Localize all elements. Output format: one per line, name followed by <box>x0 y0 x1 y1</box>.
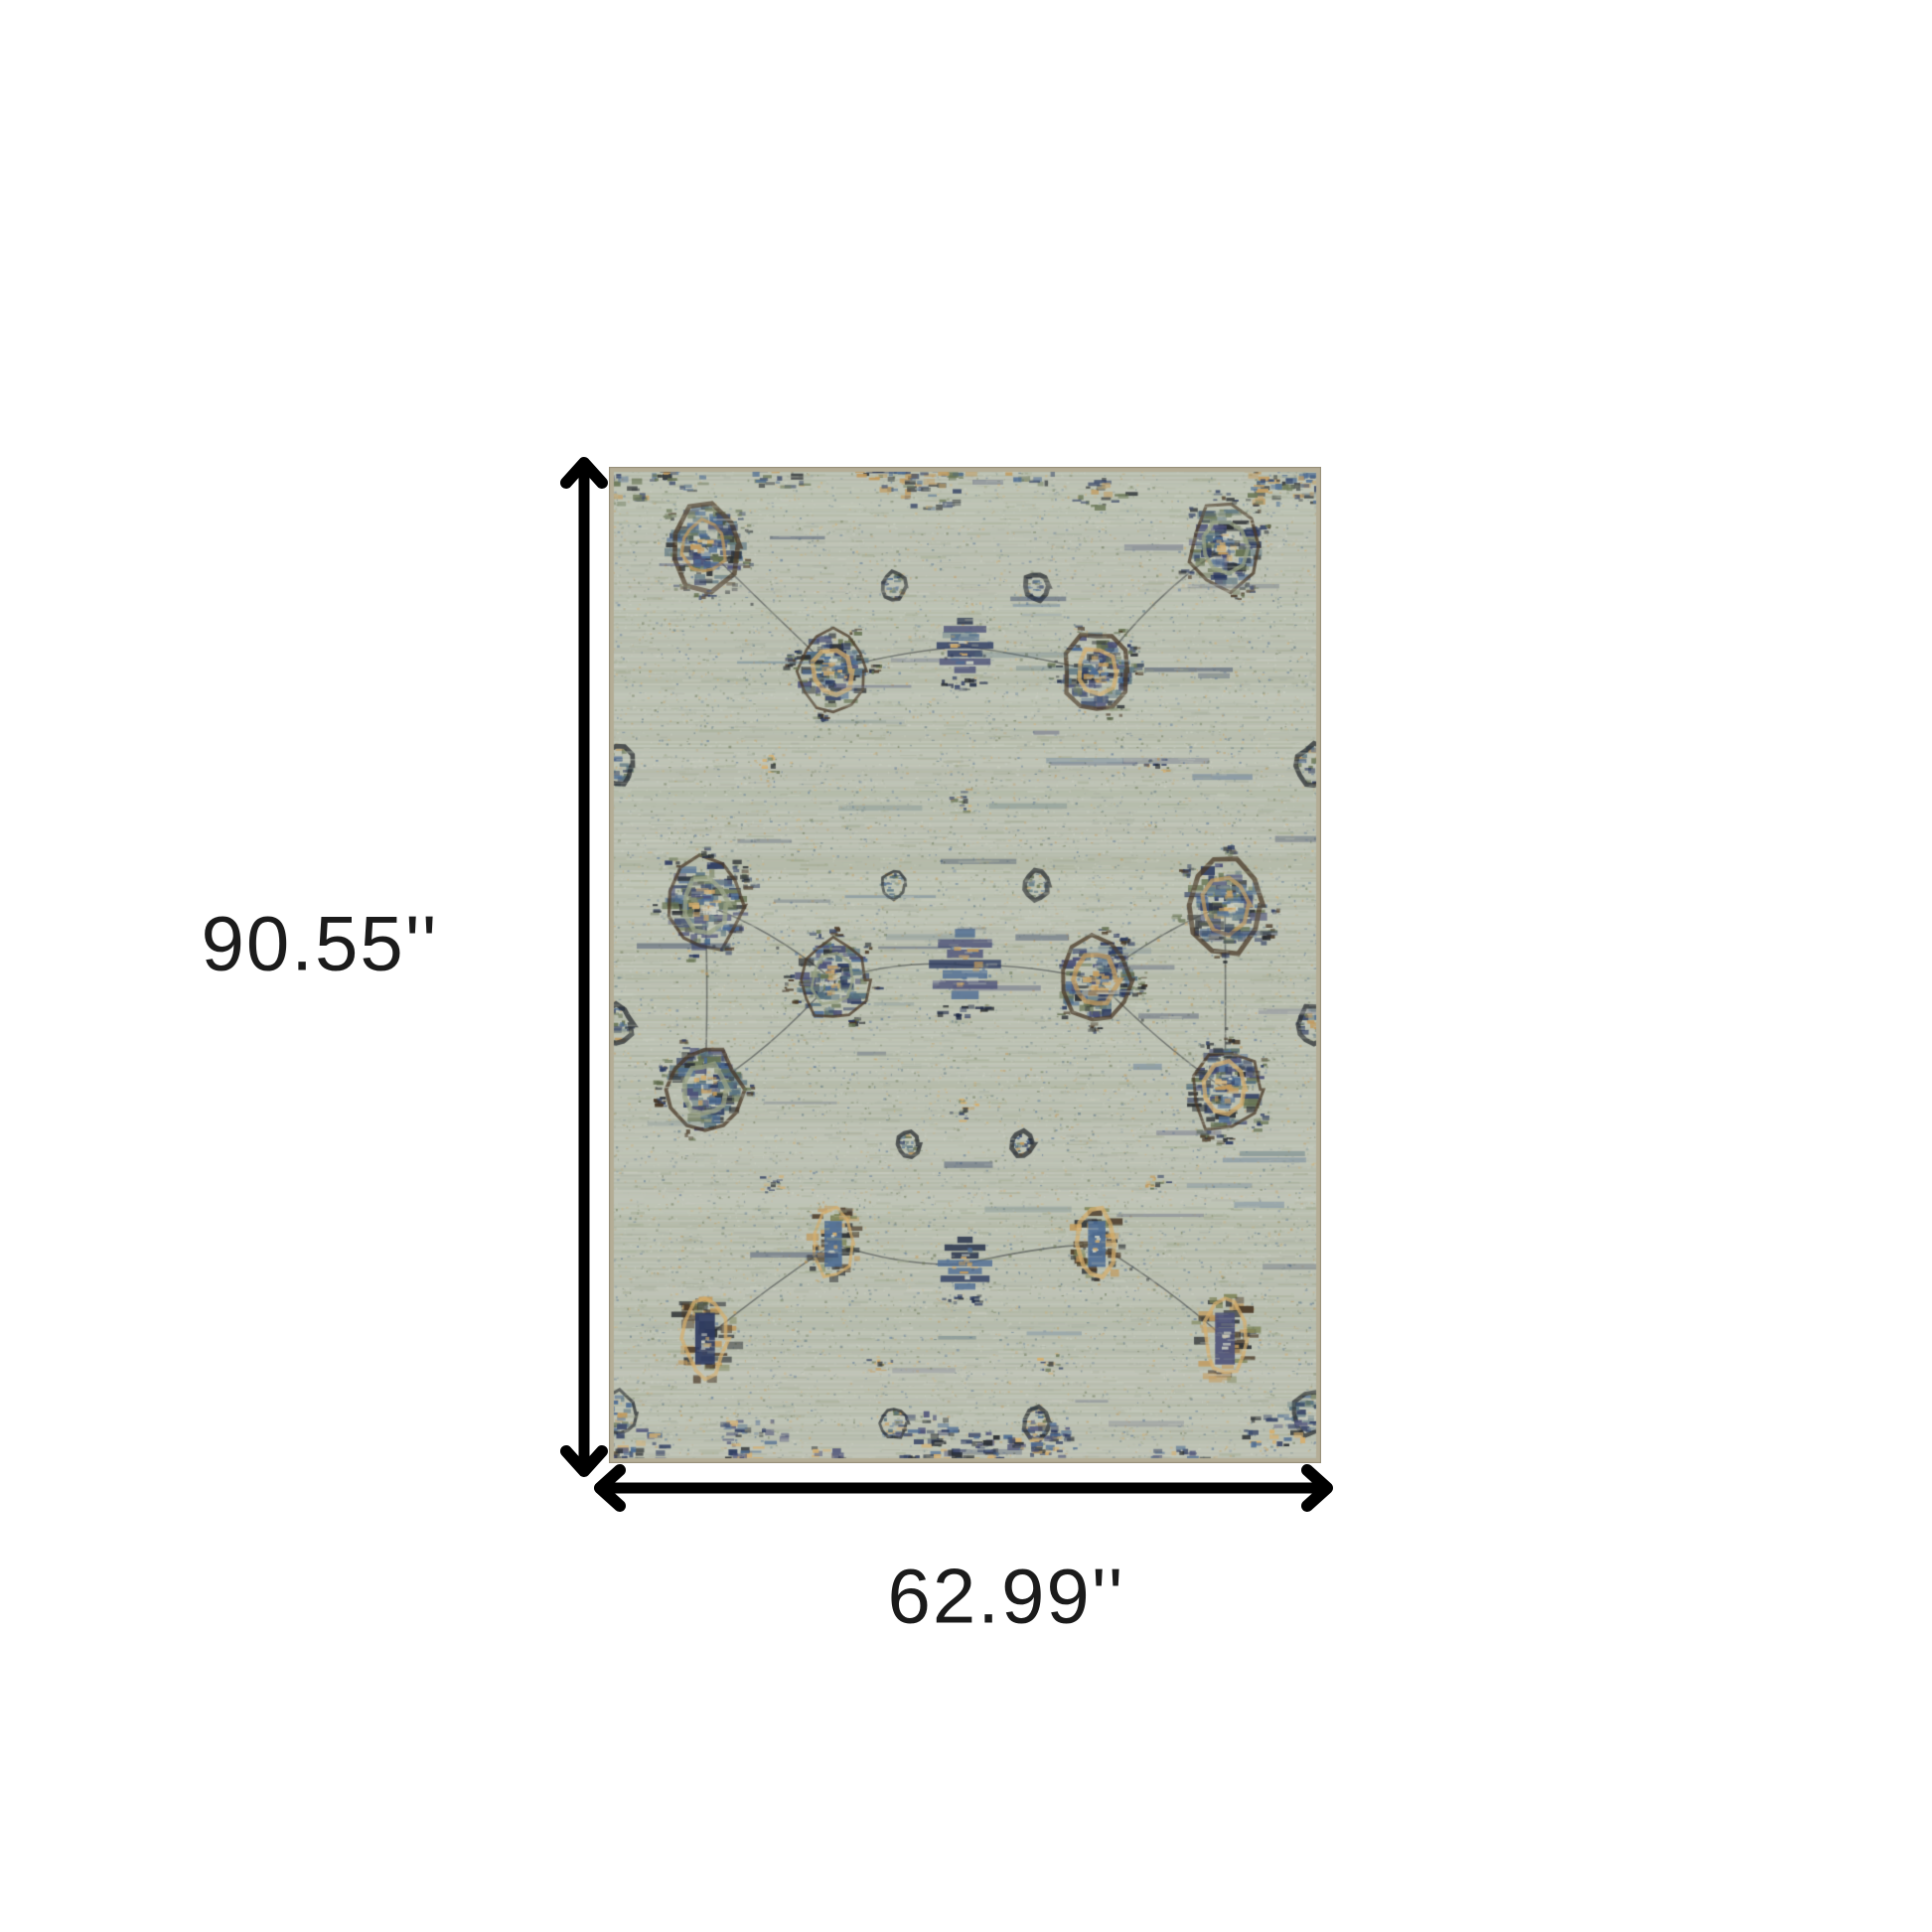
width-dimension-label: 62.99'' <box>888 1552 1125 1642</box>
arrow-left-icon <box>600 1470 620 1506</box>
arrow-up-icon <box>566 463 602 483</box>
diagram-stage: 90.55'' 62.99'' <box>0 0 1932 1932</box>
arrow-down-icon <box>566 1451 602 1471</box>
rug-image <box>609 467 1321 1463</box>
arrow-right-icon <box>1307 1470 1327 1506</box>
width-dimension-arrow <box>600 1470 1327 1506</box>
height-dimension-label: 90.55'' <box>202 899 439 989</box>
height-dimension-arrow <box>566 463 602 1471</box>
